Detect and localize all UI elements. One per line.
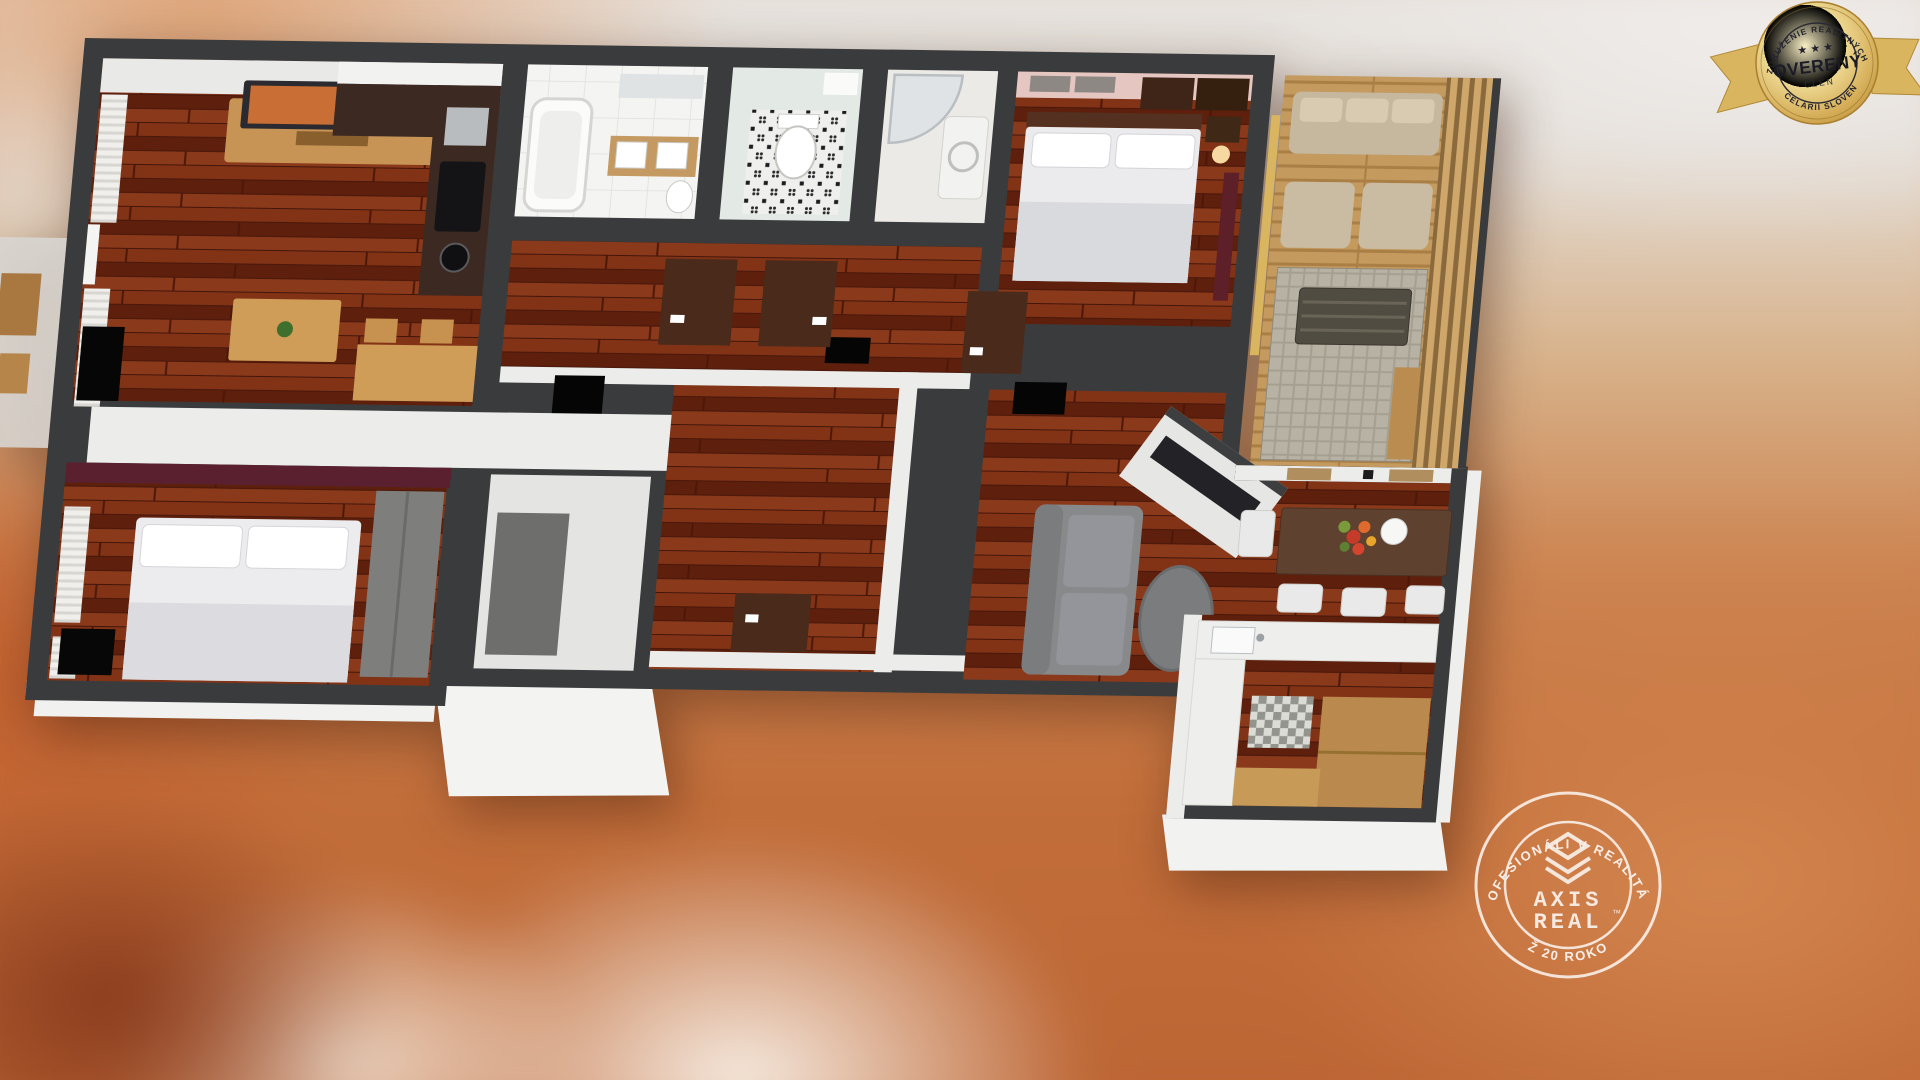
overeny-badge: ZDRUŽENIE REALITNÝCH ★ ★ ★ OVERENÝ ČLEN … <box>0 0 1920 1080</box>
badge-bottom-arc: KANCELÁRIÍ SLOVENSKA <box>1 0 1861 334</box>
scene: PROFESIONÁLI V REALITÁCH UŽ 20 ROKOV AXI… <box>0 0 1920 1080</box>
